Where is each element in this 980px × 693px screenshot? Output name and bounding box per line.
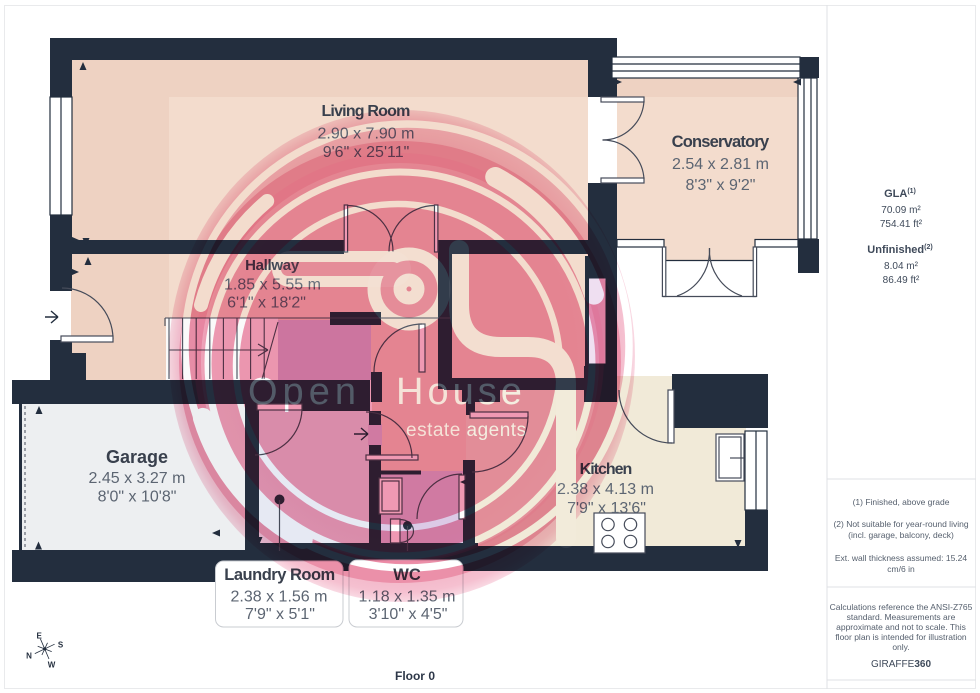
svg-text:House: House [396, 371, 526, 413]
svg-text:Open: Open [248, 371, 361, 413]
svg-text:estate agents: estate agents [406, 420, 527, 441]
